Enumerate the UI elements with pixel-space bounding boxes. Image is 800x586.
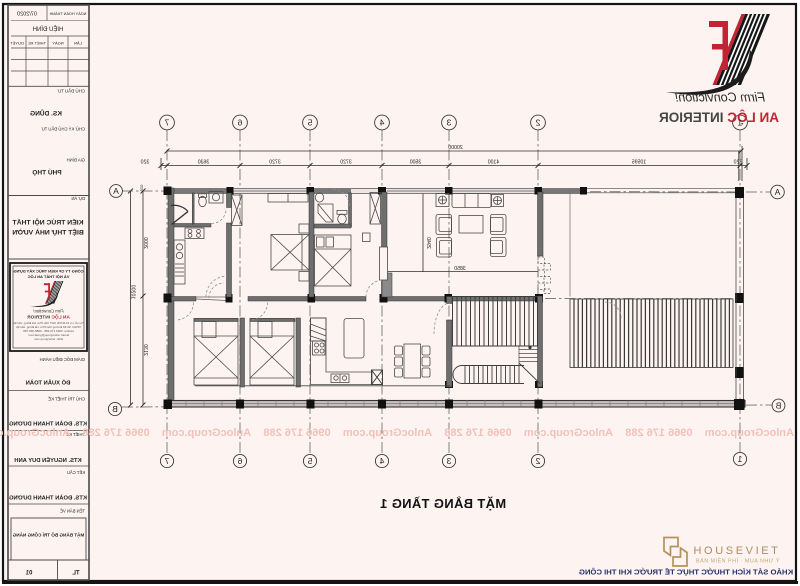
svg-text:Web: anlocgroup.com: Web: anlocgroup.com	[33, 337, 63, 341]
svg-text:Firm Conviction!: Firm Conviction!	[674, 91, 765, 105]
svg-text:TL: TL	[72, 571, 80, 577]
svg-text:B: B	[112, 404, 118, 414]
svg-text:CÔNG TY CP KIẾN TRÚC XÂY DỰNG: CÔNG TY CP KIẾN TRÚC XÂY DỰNG	[13, 269, 83, 274]
svg-text:5: 5	[307, 118, 312, 128]
svg-text:10595: 10595	[632, 160, 647, 166]
svg-text:PHÚ THỌ: PHÚ THỌ	[32, 168, 61, 177]
svg-text:AnlocGroup.com 0966 176 288: AnlocGroup.com 0966 176 288 AnlocGroup.c…	[0, 427, 794, 439]
svg-text:320: 320	[140, 184, 145, 191]
svg-text:320: 320	[734, 160, 743, 166]
svg-text:DỰ ÁN: DỰ ÁN	[71, 196, 85, 201]
svg-text:3720: 3720	[340, 160, 352, 166]
svg-text:LẦN: LẦN	[74, 41, 82, 46]
svg-text:2940: 2940	[425, 237, 431, 249]
svg-text:ĐỖ XUÂN TOÀN: ĐỖ XUÂN TOÀN	[26, 380, 71, 387]
svg-text:320: 320	[141, 160, 150, 166]
svg-text:4: 4	[379, 456, 384, 466]
svg-text:20000: 20000	[448, 145, 463, 151]
svg-text:BẢN MIỀN PHÍ · MUA NHƯ Ý: BẢN MIỀN PHÍ · MUA NHƯ Ý	[696, 558, 780, 565]
svg-text:THIẾT KẾ: THIẾT KẾ	[28, 41, 46, 46]
svg-text:BIỆT THỰ NHÀ VƯỜN: BIỆT THỰ NHÀ VƯỜN	[12, 228, 84, 237]
svg-text:3500: 3500	[410, 160, 422, 166]
svg-text:KTS. NGUYỄN DUY ANH: KTS. NGUYỄN DUY ANH	[14, 457, 81, 464]
svg-text:TÊN BẢN VẼ: TÊN BẢN VẼ	[60, 509, 85, 514]
svg-text:1: 1	[737, 118, 742, 128]
svg-text:1: 1	[737, 454, 742, 464]
svg-text:NGÀY: NGÀY	[52, 41, 64, 46]
svg-text:07/2020: 07/2020	[17, 12, 37, 18]
svg-text:4100: 4100	[488, 160, 500, 166]
svg-text:6: 6	[237, 118, 242, 128]
svg-text:VÀ NỘI THẤT AN LỘC: VÀ NỘI THẤT AN LỘC	[27, 274, 69, 279]
svg-text:7: 7	[164, 118, 169, 128]
svg-text:KHẢO SÁT KÍCH THƯỚC THỰC TẾ TR: KHẢO SÁT KÍCH THƯỚC THỰC TẾ TRƯỚC KHI TH…	[579, 567, 793, 577]
svg-text:2130: 2130	[142, 344, 148, 356]
svg-text:A: A	[113, 186, 119, 196]
svg-text:HOUSEVIET: HOUSEVIET	[694, 545, 781, 557]
svg-text:3: 3	[446, 118, 451, 128]
svg-text:DUYỆT: DUYỆT	[10, 41, 24, 46]
svg-text:CHỦ TRÌ THIẾT KẾ: CHỦ TRÌ THIẾT KẾ	[48, 397, 85, 402]
svg-text:KTS. ĐOÀN THANH DƯƠNG: KTS. ĐOÀN THANH DƯƠNG	[8, 495, 87, 502]
svg-text:5: 5	[307, 456, 312, 466]
svg-text:3630: 3630	[198, 160, 210, 166]
svg-text:4: 4	[379, 118, 384, 128]
svg-text:6: 6	[237, 456, 242, 466]
svg-text:2000: 2000	[142, 237, 148, 249]
svg-text:A: A	[774, 187, 780, 197]
svg-text:CHỦ ĐẦU TƯ: CHỦ ĐẦU TƯ	[57, 89, 85, 94]
svg-text:MẶT BẰNG TẦNG 1: MẶT BẰNG TẦNG 1	[380, 496, 506, 511]
svg-text:NGÀY HOÀN THÀNH: NGÀY HOÀN THÀNH	[49, 12, 86, 16]
svg-text:MẶT BẰNG BỐ TRÍ CÔNG NĂNG: MẶT BẰNG BỐ TRÍ CÔNG NĂNG	[12, 531, 84, 538]
svg-text:HIỆU ĐÍNH: HIỆU ĐÍNH	[33, 25, 64, 33]
svg-text:3850: 3850	[454, 266, 466, 272]
svg-text:CHỮ KÝ CHỦ ĐẦU TƯ: CHỮ KÝ CHỦ ĐẦU TƯ	[41, 127, 85, 132]
svg-text:B: B	[775, 401, 781, 411]
svg-text:10200: 10200	[130, 285, 136, 300]
svg-text:01: 01	[25, 571, 32, 577]
svg-text:3720: 3720	[269, 160, 281, 166]
svg-text:2: 2	[535, 456, 540, 466]
svg-text:KS. DŨNG: KS. DŨNG	[30, 109, 62, 118]
svg-text:GIÁM ĐỐC ĐIỀU HÀNH: GIÁM ĐỐC ĐIỀU HÀNH	[40, 357, 85, 362]
svg-text:GIA ĐÌNH: GIA ĐÌNH	[67, 158, 85, 163]
svg-text:2: 2	[535, 118, 540, 128]
svg-text:3: 3	[446, 456, 451, 466]
svg-text:KẾT CẤU: KẾT CẤU	[67, 470, 85, 475]
svg-text:AN LỘC INTERIOR: AN LỘC INTERIOR	[659, 110, 779, 125]
svg-text:Firm Conviction!: Firm Conviction!	[33, 309, 64, 314]
svg-text:7: 7	[164, 456, 169, 466]
